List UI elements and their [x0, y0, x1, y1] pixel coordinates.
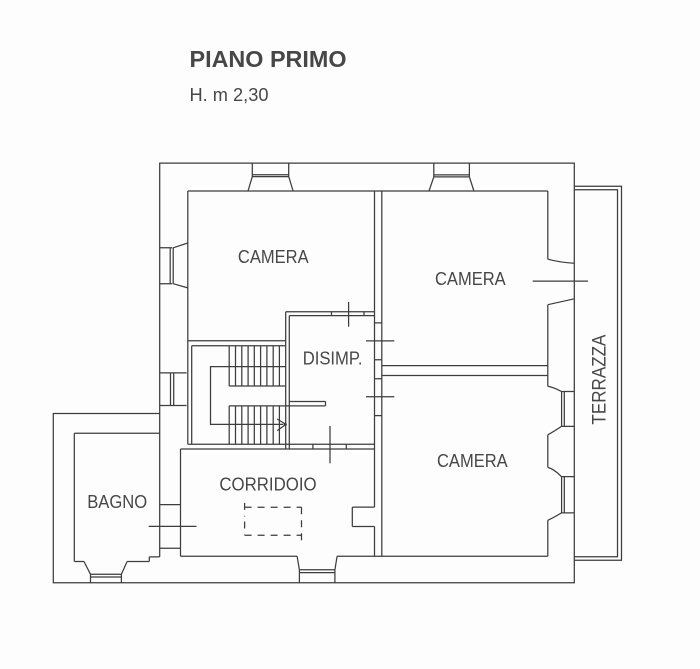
svg-text:DISIMP.: DISIMP. [303, 348, 363, 369]
svg-text:CORRIDOIO: CORRIDOIO [219, 474, 316, 494]
svg-text:PIANO PRIMO: PIANO PRIMO [190, 46, 347, 72]
svg-text:CAMERA: CAMERA [435, 268, 506, 289]
svg-text:TERRAZZA: TERRAZZA [589, 334, 610, 424]
svg-text:BAGNO: BAGNO [87, 491, 147, 512]
svg-text:CAMERA: CAMERA [437, 450, 508, 471]
svg-text:H. m 2,30: H. m 2,30 [190, 85, 269, 105]
svg-text:CAMERA: CAMERA [238, 246, 309, 267]
